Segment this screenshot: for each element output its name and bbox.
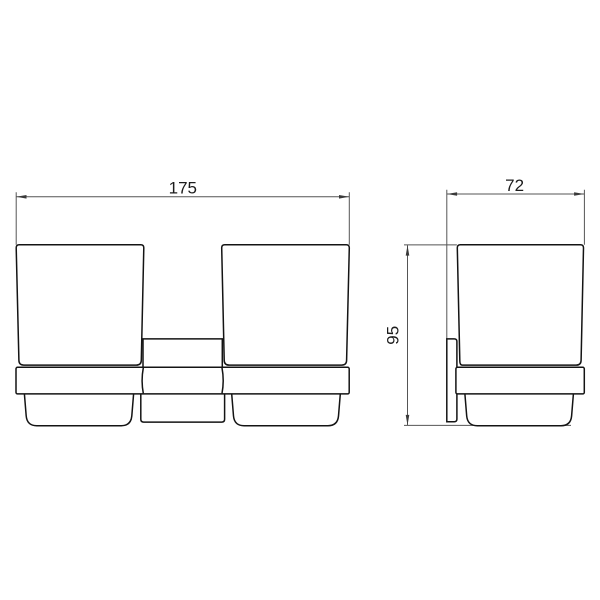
svg-text:95: 95 [384, 326, 403, 345]
svg-text:72: 72 [505, 176, 524, 195]
svg-text:175: 175 [169, 179, 197, 198]
